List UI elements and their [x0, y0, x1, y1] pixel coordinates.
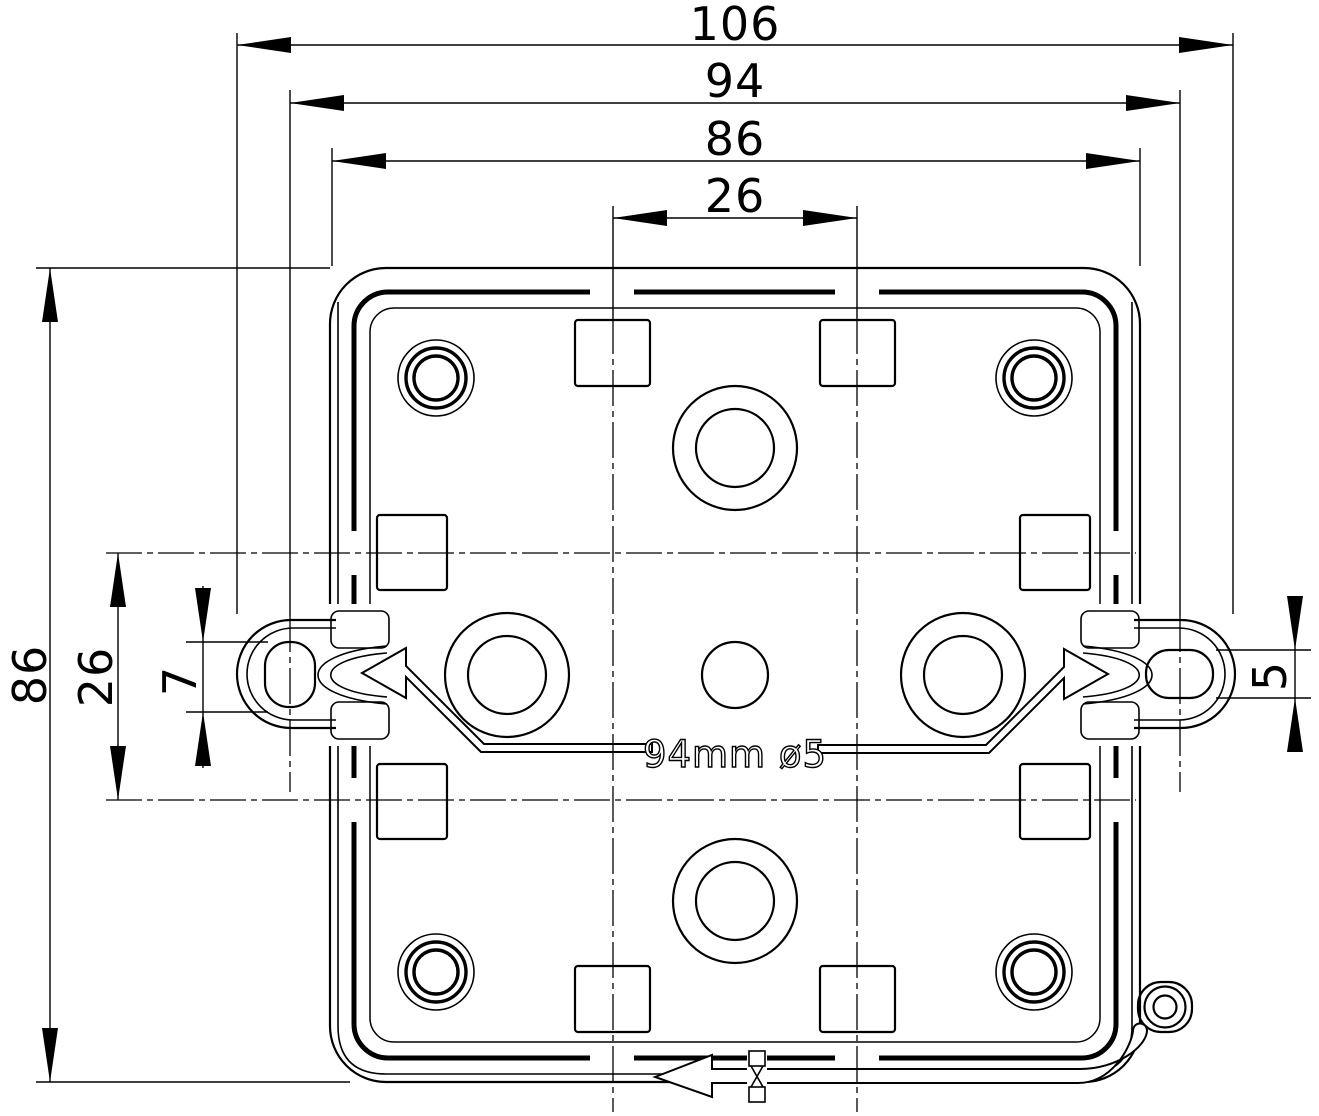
dim-5-label: 5 [1243, 661, 1297, 691]
dim-7-label: 7 [153, 666, 207, 696]
dim-26-left-label: 26 [69, 647, 123, 708]
junction-box-drawing: 106 94 86 26 86 [0, 0, 1319, 1116]
dim-94-label: 94 [705, 54, 766, 108]
note-94mm-o5: 94mm ø5 [643, 733, 827, 776]
dim-26-top-label: 26 [705, 169, 766, 223]
technical-drawing-canvas: 106 94 86 26 86 [0, 0, 1319, 1116]
dim-86-left-label: 86 [3, 645, 57, 706]
dim-106-label: 106 [690, 0, 781, 51]
dim-86-top-label: 86 [705, 112, 766, 166]
